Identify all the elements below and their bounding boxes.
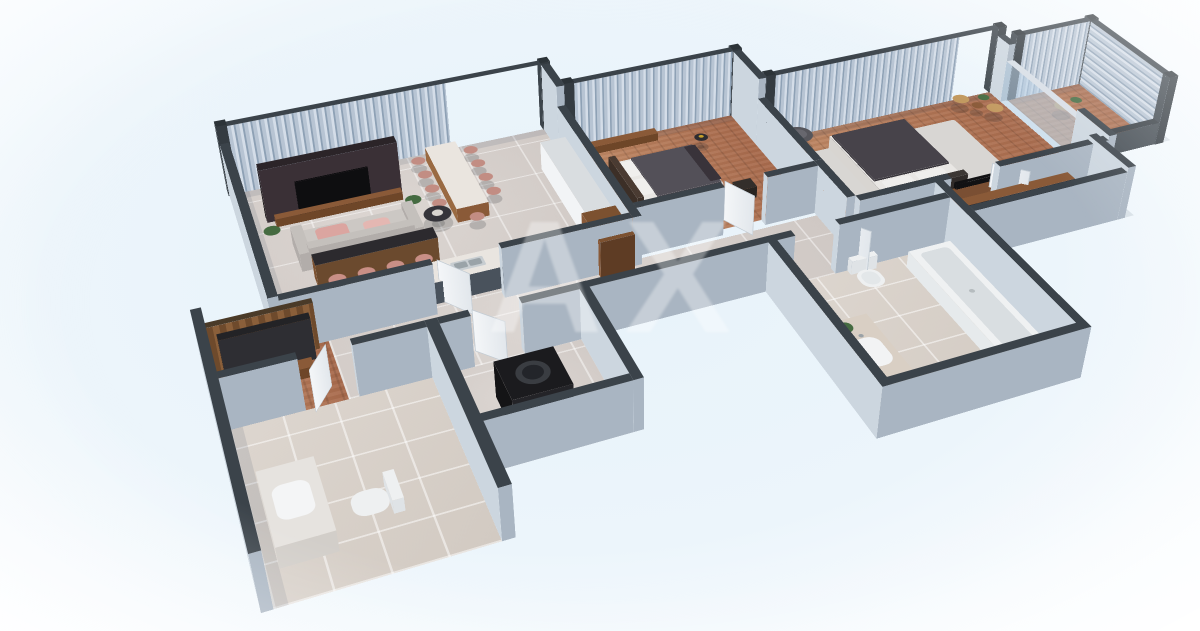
floorplan-3d-view: AX [0, 0, 1200, 631]
laundry-right-wall-south-face [633, 377, 644, 432]
bathroom2-right-wall-south-face [498, 484, 516, 541]
